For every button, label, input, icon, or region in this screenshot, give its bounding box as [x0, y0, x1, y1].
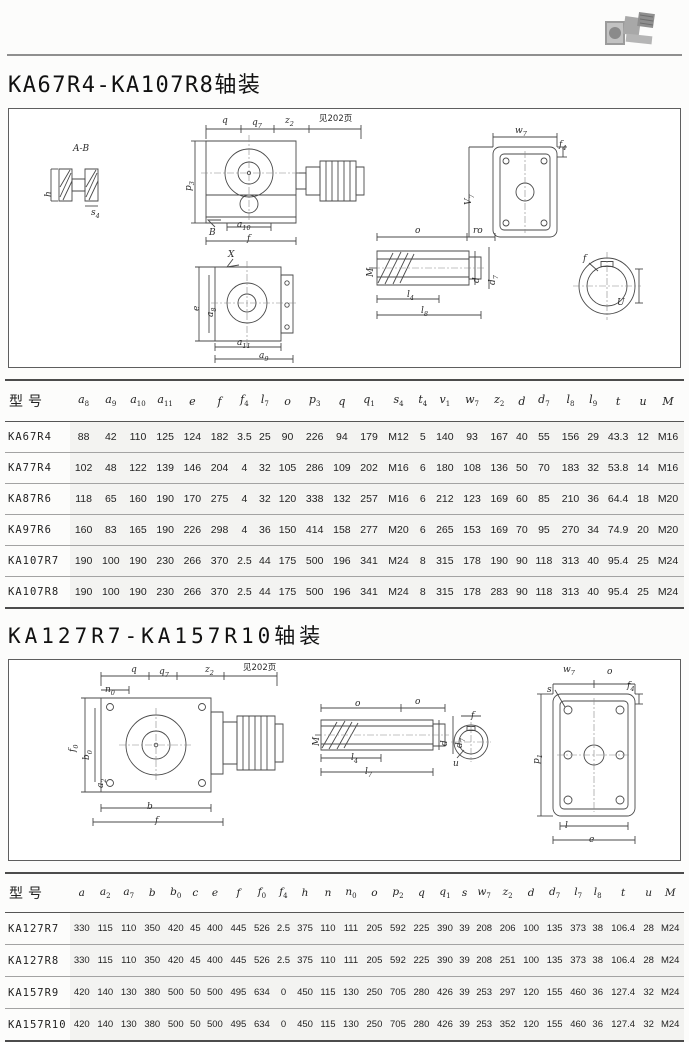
value-cell: 251 — [496, 945, 520, 977]
value-cell: 120 — [274, 484, 301, 515]
catalog-page: KA67R4-KA107R8轴装 — [0, 0, 689, 1042]
column-header: w7 — [458, 380, 485, 422]
column-header: t — [602, 380, 634, 422]
value-cell: 93 — [458, 422, 485, 453]
value-cell: 265 — [431, 515, 458, 546]
column-header: l7 — [566, 873, 590, 913]
value-cell: 175 — [274, 546, 301, 577]
section1-technical-drawing — [9, 109, 680, 367]
table-row: KA157R9420140130380500505004956340450115… — [5, 977, 684, 1009]
model-cell: KA157R10 — [5, 1009, 70, 1042]
value-cell: 130 — [339, 1009, 363, 1042]
value-cell: 196 — [328, 577, 355, 609]
value-cell: M24 — [652, 577, 684, 609]
value-cell: M24 — [652, 546, 684, 577]
value-cell: 100 — [519, 945, 543, 977]
column-header: a2 — [94, 873, 118, 913]
value-cell: 426 — [433, 1009, 457, 1042]
dim-label: z2 — [205, 666, 214, 676]
value-cell: M24 — [656, 977, 684, 1009]
value-cell: 225 — [410, 913, 434, 945]
column-header: u — [634, 380, 652, 422]
value-cell: 44 — [256, 577, 274, 609]
value-cell: 88 — [70, 422, 97, 453]
value-cell: 140 — [431, 422, 458, 453]
dim-label: a11 — [237, 339, 251, 349]
value-cell: 160 — [70, 515, 97, 546]
value-cell: 169 — [486, 515, 513, 546]
value-cell: 0 — [274, 977, 294, 1009]
value-cell: M24 — [656, 1009, 684, 1042]
value-cell: 70 — [513, 515, 531, 546]
value-cell: 115 — [317, 1009, 339, 1042]
header-row: 型号a8a9a10a11eff4l7op3qq1s4t4v1w7z2dd7l8l… — [5, 380, 684, 422]
column-header: l7 — [256, 380, 274, 422]
column-header: w7 — [472, 873, 496, 913]
value-cell: 106.4 — [606, 913, 641, 945]
column-header: z2 — [496, 873, 520, 913]
value-cell: 110 — [117, 945, 141, 977]
dim-label: 见202页 — [319, 115, 352, 124]
dim-label: M — [313, 737, 322, 746]
column-header: o — [274, 380, 301, 422]
value-cell: 44 — [256, 546, 274, 577]
column-header: e — [203, 873, 227, 913]
value-cell: 32 — [256, 484, 274, 515]
dim-label: B — [209, 229, 216, 238]
value-cell: 370 — [206, 577, 233, 609]
column-header: f4 — [274, 873, 294, 913]
value-cell: M24 — [656, 945, 684, 977]
value-cell: 170 — [179, 484, 206, 515]
value-cell: 50 — [188, 1009, 204, 1042]
column-header: v1 — [431, 380, 458, 422]
column-header: q1 — [355, 380, 382, 422]
dim-label: a8 — [207, 307, 217, 317]
value-cell: M20 — [652, 484, 684, 515]
column-header: q1 — [433, 873, 457, 913]
value-cell: 315 — [431, 577, 458, 609]
table-row: KA67R488421101251241823.5259022694179M12… — [5, 422, 684, 453]
value-cell: 115 — [94, 945, 118, 977]
value-cell: 352 — [496, 1009, 520, 1042]
value-cell: 111 — [339, 945, 363, 977]
value-cell: 150 — [274, 515, 301, 546]
table-row: KA127R7330115110350420454004455262.53751… — [5, 913, 684, 945]
column-header: M — [652, 380, 684, 422]
value-cell: 230 — [152, 546, 179, 577]
dim-label: e — [193, 306, 202, 311]
value-cell: 208 — [472, 945, 496, 977]
value-cell: 180 — [431, 453, 458, 484]
model-cell: KA127R7 — [5, 913, 70, 945]
value-cell: 6 — [414, 453, 431, 484]
value-cell: 45 — [188, 913, 204, 945]
value-cell: 65 — [97, 484, 124, 515]
section2-dimension-table: 型号aa2a7bb0ceff0f4hnn0op2qq1sw7z2dd7l7l8t… — [5, 872, 684, 1042]
column-header: z2 — [486, 380, 513, 422]
value-cell: 270 — [557, 515, 584, 546]
value-cell: 146 — [179, 453, 206, 484]
value-cell: 8 — [414, 546, 431, 577]
column-header: l8 — [590, 873, 606, 913]
value-cell: 156 — [557, 422, 584, 453]
dim-label: b0 — [83, 750, 93, 760]
value-cell: 178 — [458, 577, 485, 609]
value-cell: 341 — [355, 577, 382, 609]
table-row: KA87R611865160190170275432120338132257M1… — [5, 484, 684, 515]
table-row: KA157R1042014013038050050500495634045011… — [5, 1009, 684, 1042]
value-cell: 426 — [433, 977, 457, 1009]
value-cell: 297 — [496, 977, 520, 1009]
value-cell: 4 — [233, 484, 256, 515]
value-cell: 190 — [152, 484, 179, 515]
value-cell: 190 — [70, 546, 97, 577]
value-cell: 206 — [496, 913, 520, 945]
column-header: l8 — [557, 380, 584, 422]
value-cell: 130 — [339, 977, 363, 1009]
value-cell: 338 — [301, 484, 328, 515]
value-cell: 266 — [179, 546, 206, 577]
value-cell: 110 — [317, 945, 339, 977]
value-cell: 500 — [164, 977, 188, 1009]
value-cell: 12 — [634, 422, 652, 453]
dim-label: A-B — [73, 145, 89, 154]
column-header: l9 — [584, 380, 602, 422]
value-cell: 28 — [641, 945, 657, 977]
value-cell: 190 — [70, 577, 97, 609]
column-header: a10 — [124, 380, 151, 422]
value-cell: 94 — [328, 422, 355, 453]
value-cell: 95.4 — [602, 546, 634, 577]
value-cell: 450 — [293, 1009, 317, 1042]
dim-label: f — [155, 817, 158, 826]
column-header: a11 — [152, 380, 179, 422]
value-cell: 153 — [458, 515, 485, 546]
value-cell: 25 — [634, 546, 652, 577]
column-header: b0 — [164, 873, 188, 913]
value-cell: 3.5 — [233, 422, 256, 453]
value-cell: 100 — [97, 546, 124, 577]
value-cell: 420 — [164, 913, 188, 945]
value-cell: 43.3 — [602, 422, 634, 453]
value-cell: 253 — [472, 977, 496, 1009]
value-cell: 38 — [590, 945, 606, 977]
value-cell: 105 — [274, 453, 301, 484]
value-cell: 380 — [141, 977, 165, 1009]
dim-label: o — [415, 227, 420, 236]
value-cell: 29 — [584, 422, 602, 453]
value-cell: 155 — [543, 977, 567, 1009]
value-cell: 118 — [531, 546, 557, 577]
column-header: d — [519, 873, 543, 913]
value-cell: 102 — [70, 453, 97, 484]
table-row: KA97R616083165190226298436150414158277M2… — [5, 515, 684, 546]
value-cell: 526 — [250, 945, 274, 977]
value-cell: 48 — [97, 453, 124, 484]
value-cell: 202 — [355, 453, 382, 484]
value-cell: 257 — [355, 484, 382, 515]
dim-label: q — [131, 666, 137, 675]
value-cell: 90 — [274, 422, 301, 453]
dim-label: w7 — [515, 127, 527, 137]
model-cell: KA107R8 — [5, 577, 70, 609]
value-cell: 313 — [557, 577, 584, 609]
section2-diagram-panel: qq7z2见202页n0f0b0a2bfooMdd7l4l7ufw7osf4p1… — [8, 659, 681, 861]
value-cell: 390 — [433, 913, 457, 945]
value-cell: 400 — [203, 945, 227, 977]
dim-label: X — [228, 251, 234, 260]
value-cell: 178 — [458, 546, 485, 577]
value-cell: 350 — [141, 913, 165, 945]
value-cell: 39 — [457, 1009, 473, 1042]
value-cell: 95 — [531, 515, 557, 546]
value-cell: 277 — [355, 515, 382, 546]
value-cell: 0 — [274, 1009, 294, 1042]
column-header: a8 — [70, 380, 97, 422]
column-header: n — [317, 873, 339, 913]
value-cell: 32 — [641, 977, 657, 1009]
value-cell: 32 — [641, 1009, 657, 1042]
value-cell: 250 — [363, 977, 387, 1009]
value-cell: 130 — [117, 977, 141, 1009]
value-cell: 120 — [519, 977, 543, 1009]
value-cell: 375 — [293, 913, 317, 945]
value-cell: 495 — [227, 1009, 251, 1042]
value-cell: 315 — [431, 546, 458, 577]
value-cell: 122 — [124, 453, 151, 484]
value-cell: 85 — [531, 484, 557, 515]
value-cell: 50 — [188, 977, 204, 1009]
value-cell: 226 — [179, 515, 206, 546]
model-cell: KA77R4 — [5, 453, 70, 484]
value-cell: 169 — [486, 484, 513, 515]
column-header: q — [328, 380, 355, 422]
value-cell: 445 — [227, 913, 251, 945]
value-cell: 210 — [557, 484, 584, 515]
value-cell: 109 — [328, 453, 355, 484]
value-cell: 460 — [566, 1009, 590, 1042]
value-cell: 90 — [513, 577, 531, 609]
value-cell: 705 — [386, 977, 410, 1009]
value-cell: 634 — [250, 977, 274, 1009]
section1-dimension-table: 型号a8a9a10a11eff4l7op3qq1s4t4v1w7z2dd7l8l… — [5, 379, 684, 609]
value-cell: 592 — [386, 945, 410, 977]
value-cell: 375 — [293, 945, 317, 977]
value-cell: 125 — [152, 422, 179, 453]
column-header: a7 — [117, 873, 141, 913]
value-cell: 390 — [433, 945, 457, 977]
value-cell: 160 — [124, 484, 151, 515]
value-cell: 8 — [414, 577, 431, 609]
table-row: KA107R81901001902302663702.5441755001963… — [5, 577, 684, 609]
dim-label: l8 — [421, 307, 428, 317]
value-cell: 460 — [566, 977, 590, 1009]
value-cell: 286 — [301, 453, 328, 484]
dim-label: f0 — [69, 745, 79, 752]
column-header: p3 — [301, 380, 328, 422]
value-cell: 120 — [519, 1009, 543, 1042]
column-header: t — [606, 873, 641, 913]
value-cell: 127.4 — [606, 1009, 641, 1042]
dim-label: 见202页 — [243, 664, 276, 673]
column-header: o — [363, 873, 387, 913]
value-cell: M24 — [656, 913, 684, 945]
value-cell: 115 — [317, 977, 339, 1009]
value-cell: 36 — [256, 515, 274, 546]
value-cell: 205 — [363, 913, 387, 945]
value-cell: 100 — [97, 577, 124, 609]
value-cell: 40 — [513, 422, 531, 453]
value-cell: 420 — [70, 977, 94, 1009]
value-cell: 140 — [94, 1009, 118, 1042]
value-cell: 140 — [94, 977, 118, 1009]
value-cell: 108 — [458, 453, 485, 484]
value-cell: 50 — [513, 453, 531, 484]
model-cell: KA97R6 — [5, 515, 70, 546]
column-header: M — [656, 873, 684, 913]
value-cell: 132 — [328, 484, 355, 515]
dim-label: f4 — [559, 141, 566, 151]
column-header: q — [410, 873, 434, 913]
value-cell: 70 — [531, 453, 557, 484]
value-cell: 36 — [590, 1009, 606, 1042]
value-cell: 34 — [584, 515, 602, 546]
value-cell: 330 — [70, 945, 94, 977]
model-cell: KA127R8 — [5, 945, 70, 977]
dim-label: V7 — [465, 194, 475, 205]
value-cell: 2.5 — [274, 945, 294, 977]
value-cell: 175 — [274, 577, 301, 609]
dim-label: z2 — [285, 117, 294, 127]
value-cell: 55 — [531, 422, 557, 453]
value-cell: M16 — [383, 484, 415, 515]
dim-label: M — [367, 268, 376, 277]
value-cell: 118 — [70, 484, 97, 515]
column-header: t4 — [414, 380, 431, 422]
column-header: u — [641, 873, 657, 913]
value-cell: 36 — [584, 484, 602, 515]
value-cell: 158 — [328, 515, 355, 546]
dim-label: d7 — [456, 738, 466, 748]
value-cell: 414 — [301, 515, 328, 546]
column-header: d7 — [543, 873, 567, 913]
value-cell: 123 — [458, 484, 485, 515]
column-header: 型号 — [5, 873, 70, 913]
dim-label: u — [453, 760, 459, 769]
value-cell: 179 — [355, 422, 382, 453]
value-cell: 450 — [293, 977, 317, 1009]
value-cell: 230 — [152, 577, 179, 609]
dim-label: n0 — [105, 686, 115, 696]
value-cell: 167 — [486, 422, 513, 453]
value-cell: 6 — [414, 484, 431, 515]
value-cell: 39 — [457, 977, 473, 1009]
value-cell: 6 — [414, 515, 431, 546]
dim-label: a10 — [237, 221, 251, 231]
dim-label: b — [147, 803, 153, 812]
value-cell: 445 — [227, 945, 251, 977]
value-cell: 190 — [124, 546, 151, 577]
value-cell: 182 — [206, 422, 233, 453]
value-cell: 136 — [486, 453, 513, 484]
dim-label: l — [565, 822, 568, 831]
value-cell: 25 — [634, 577, 652, 609]
value-cell: M16 — [383, 453, 415, 484]
section1-title: KA67R4-KA107R8轴装 — [8, 67, 687, 99]
value-cell: 298 — [206, 515, 233, 546]
value-cell: 526 — [250, 913, 274, 945]
value-cell: 370 — [206, 546, 233, 577]
value-cell: 253 — [472, 1009, 496, 1042]
value-cell: 83 — [97, 515, 124, 546]
value-cell: 275 — [206, 484, 233, 515]
dim-label: s — [547, 686, 552, 695]
model-cell: KA87R6 — [5, 484, 70, 515]
value-cell: 38 — [590, 913, 606, 945]
dim-label: h — [45, 191, 54, 197]
value-cell: 208 — [472, 913, 496, 945]
value-cell: 495 — [227, 977, 251, 1009]
value-cell: 60 — [513, 484, 531, 515]
column-header: f4 — [233, 380, 256, 422]
column-header: p2 — [386, 873, 410, 913]
dim-label: q7 — [252, 119, 262, 129]
value-cell: 135 — [543, 945, 567, 977]
value-cell: 592 — [386, 913, 410, 945]
value-cell: 196 — [328, 546, 355, 577]
value-cell: 130 — [117, 1009, 141, 1042]
value-cell: 373 — [566, 913, 590, 945]
value-cell: 373 — [566, 945, 590, 977]
value-cell: 313 — [557, 546, 584, 577]
value-cell: M16 — [652, 453, 684, 484]
gearmotor-photo — [602, 5, 660, 51]
value-cell: 204 — [206, 453, 233, 484]
value-cell: 205 — [363, 945, 387, 977]
value-cell: 283 — [486, 577, 513, 609]
value-cell: 115 — [94, 913, 118, 945]
value-cell: M20 — [383, 515, 415, 546]
dim-label: d — [473, 277, 482, 283]
section1-diagram-panel: A-Bhs4qq7z2见202页p3Ba10fXea8a11a9oroMdd7l… — [8, 108, 681, 368]
value-cell: 14 — [634, 453, 652, 484]
value-cell: 40 — [584, 546, 602, 577]
page-top-rule — [7, 0, 682, 56]
dim-label: p1 — [533, 754, 543, 764]
model-cell: KA107R7 — [5, 546, 70, 577]
value-cell: M16 — [652, 422, 684, 453]
value-cell: 4 — [233, 515, 256, 546]
column-header: f — [227, 873, 251, 913]
column-header: s — [457, 873, 473, 913]
value-cell: 500 — [203, 1009, 227, 1042]
value-cell: 42 — [97, 422, 124, 453]
dim-label: f4 — [627, 682, 634, 692]
dim-label: l7 — [365, 768, 372, 778]
value-cell: 500 — [301, 577, 328, 609]
value-cell: 64.4 — [602, 484, 634, 515]
dim-label: o — [355, 700, 360, 709]
column-header: b — [141, 873, 165, 913]
value-cell: 100 — [519, 913, 543, 945]
value-cell: 350 — [141, 945, 165, 977]
model-cell: KA157R9 — [5, 977, 70, 1009]
value-cell: 110 — [124, 422, 151, 453]
value-cell: 330 — [70, 913, 94, 945]
value-cell: 420 — [70, 1009, 94, 1042]
value-cell: 266 — [179, 577, 206, 609]
